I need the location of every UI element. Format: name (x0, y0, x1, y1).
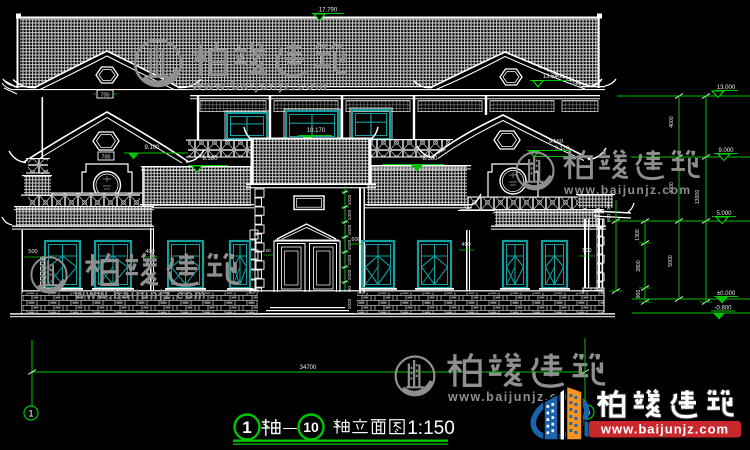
svg-text:1300: 1300 (635, 229, 641, 241)
svg-text:20: 20 (265, 248, 271, 254)
svg-text:400: 400 (461, 242, 470, 248)
svg-text:2800: 2800 (636, 260, 642, 272)
svg-text:700: 700 (100, 93, 109, 99)
svg-text:13.540: 13.540 (543, 74, 562, 80)
svg-text:13000: 13000 (695, 190, 701, 205)
svg-text:1020: 1020 (347, 269, 353, 280)
svg-text:5000: 5000 (668, 255, 674, 267)
svg-text:4000: 4000 (669, 116, 675, 128)
svg-text:www.baijunjz.com: www.baijunjz.com (563, 183, 692, 197)
svg-text:9.120: 9.120 (555, 146, 570, 152)
svg-text:1020: 1020 (347, 254, 353, 265)
svg-text:www.baijunjz.com: www.baijunjz.com (74, 288, 207, 302)
svg-text:1020: 1020 (347, 209, 353, 220)
svg-text:—: — (283, 419, 297, 435)
svg-text:17.790: 17.790 (319, 8, 338, 14)
svg-text:1020: 1020 (347, 224, 353, 235)
svg-text:8.380: 8.380 (422, 156, 438, 162)
svg-text:500: 500 (582, 248, 591, 254)
svg-text:900: 900 (636, 290, 642, 299)
svg-text:600: 600 (351, 237, 360, 243)
svg-text:9.100: 9.100 (144, 145, 160, 151)
svg-text:1: 1 (242, 418, 251, 437)
svg-text:34700: 34700 (300, 365, 317, 371)
svg-text:8.380: 8.380 (202, 156, 218, 162)
svg-text:10.170: 10.170 (307, 128, 326, 134)
svg-text:500: 500 (28, 249, 37, 255)
svg-text:1020: 1020 (347, 194, 353, 205)
svg-text:www.baijunjz.com: www.baijunjz.com (600, 422, 729, 437)
svg-text:1:150: 1:150 (407, 418, 455, 439)
svg-text:1020: 1020 (347, 298, 353, 309)
svg-text:9.560: 9.560 (549, 139, 564, 145)
svg-text:www.baijunjz.com: www.baijunjz.com (191, 78, 328, 93)
svg-text:10: 10 (303, 419, 319, 435)
svg-text:1: 1 (28, 409, 33, 419)
svg-text:700: 700 (101, 155, 110, 161)
svg-text:300: 300 (606, 202, 612, 210)
